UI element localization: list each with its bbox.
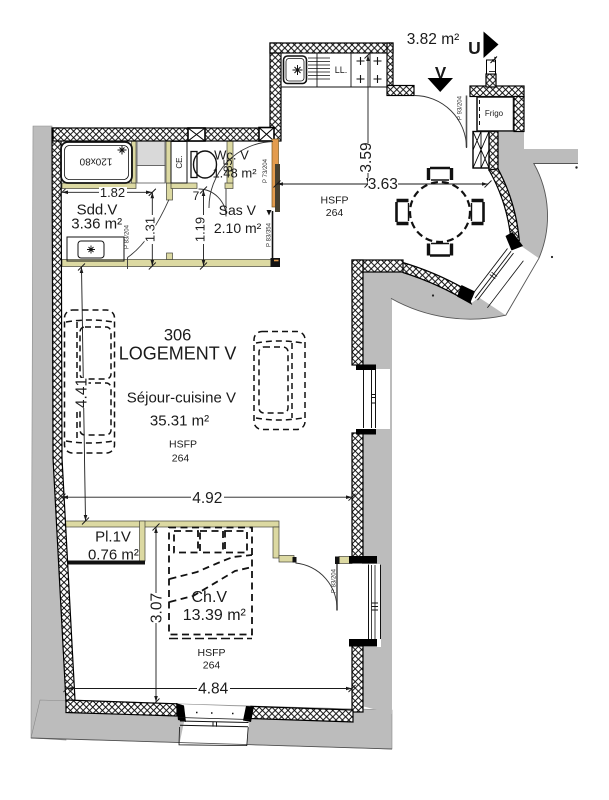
svg-text:P 83/204: P 83/204 xyxy=(332,568,338,593)
svg-text:CE.: CE. xyxy=(175,155,184,168)
svg-text:Sas V: Sas V xyxy=(219,202,257,218)
svg-text:3.07: 3.07 xyxy=(149,593,166,623)
svg-text:4.92: 4.92 xyxy=(192,490,222,507)
svg-text:4.84: 4.84 xyxy=(198,681,229,698)
svg-text:35.31 m²: 35.31 m² xyxy=(150,413,209,430)
svg-text:3.59: 3.59 xyxy=(358,142,375,172)
svg-text:P 83/204: P 83/204 xyxy=(125,224,131,249)
svg-text:HSFP: HSFP xyxy=(320,195,348,207)
svg-text:P 93/204: P 93/204 xyxy=(458,95,464,120)
svg-text:Séjour-cuisine V: Séjour-cuisine V xyxy=(127,390,236,407)
svg-text:2.10 m²: 2.10 m² xyxy=(214,220,262,236)
svg-text:0.76 m²: 0.76 m² xyxy=(88,547,139,564)
svg-text:264: 264 xyxy=(203,660,221,672)
svg-text:3.82 m²: 3.82 m² xyxy=(407,31,460,48)
svg-text:3.36 m²: 3.36 m² xyxy=(71,216,122,233)
svg-text:13.39 m²: 13.39 m² xyxy=(183,607,247,624)
svg-text:HSFP: HSFP xyxy=(169,439,197,451)
svg-text:264: 264 xyxy=(326,207,344,219)
svg-text:LL.: LL. xyxy=(335,65,348,75)
svg-text:306: 306 xyxy=(164,326,192,344)
svg-text:85: 85 xyxy=(221,159,235,173)
svg-text:Ch.V: Ch.V xyxy=(192,589,228,606)
svg-text:Pl.1V: Pl.1V xyxy=(95,529,131,546)
svg-text:3.63: 3.63 xyxy=(368,176,398,193)
svg-text:1.19: 1.19 xyxy=(192,217,207,242)
svg-text:1.82: 1.82 xyxy=(100,185,125,200)
svg-text:1.31: 1.31 xyxy=(142,217,157,242)
svg-text:U: U xyxy=(468,38,481,58)
svg-text:120x80: 120x80 xyxy=(79,156,112,167)
svg-text:7: 7 xyxy=(193,189,200,203)
svg-text:LOGEMENT V: LOGEMENT V xyxy=(119,344,237,364)
svg-text:P 83/354: P 83/354 xyxy=(267,222,273,247)
svg-text:HSFP: HSFP xyxy=(197,647,225,659)
svg-text:P 73/204: P 73/204 xyxy=(263,158,269,183)
svg-text:Frigo: Frigo xyxy=(485,109,504,118)
svg-text:4.41: 4.41 xyxy=(74,378,91,408)
svg-text:264: 264 xyxy=(172,453,190,465)
